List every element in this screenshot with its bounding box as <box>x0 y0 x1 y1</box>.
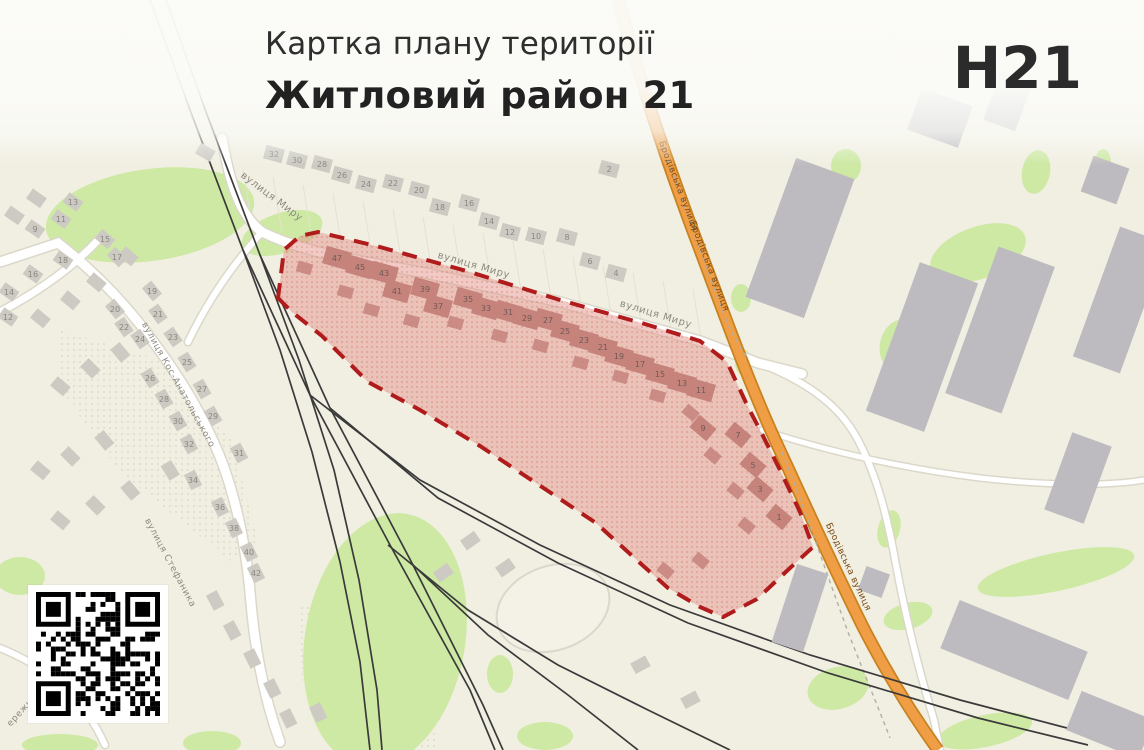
district-house-number: 33 <box>481 304 491 313</box>
house-number: 28 <box>159 395 169 404</box>
house-number: 40 <box>244 548 254 557</box>
district-house-number: 1 <box>776 513 781 522</box>
green-area <box>487 655 513 693</box>
house-number: 21 <box>153 310 163 319</box>
district-house-number: 17 <box>635 360 645 369</box>
house-number: 42 <box>251 569 261 578</box>
house-number: 20 <box>414 186 424 195</box>
district-house-number: 39 <box>420 285 430 294</box>
house-number: 12 <box>505 228 515 237</box>
house-number: 16 <box>464 199 474 208</box>
district-house-number: 11 <box>696 386 706 395</box>
district-house-number: 5 <box>750 461 755 470</box>
district-house-number: 45 <box>355 263 365 272</box>
house-number: 6 <box>587 257 592 266</box>
plan-card: 3230282624222018161412108642131191816141… <box>0 0 1144 750</box>
house-number: 25 <box>182 358 192 367</box>
district-house-number: 43 <box>379 269 389 278</box>
house-number: 14 <box>4 288 14 297</box>
district-house-number: 7 <box>735 431 740 440</box>
house-number: 18 <box>435 203 445 212</box>
district-house-number: 23 <box>579 336 589 345</box>
house-number: 30 <box>292 156 302 165</box>
house-number: 24 <box>361 180 371 189</box>
house-number: 16 <box>28 270 38 279</box>
house-number: 22 <box>119 323 129 332</box>
house-number: 18 <box>58 256 68 265</box>
house-number: 19 <box>147 287 157 296</box>
district-house-number: 31 <box>503 308 513 317</box>
house-number: 15 <box>100 235 110 244</box>
map-canvas: 3230282624222018161412108642131191816141… <box>0 0 1144 750</box>
house-number: 24 <box>135 335 145 344</box>
district-house-number: 3 <box>757 485 762 494</box>
house-number: 26 <box>337 171 347 180</box>
house-number: 26 <box>145 374 155 383</box>
house-number: 27 <box>197 385 207 394</box>
house-number: 32 <box>269 150 279 159</box>
house-number: 32 <box>184 440 194 449</box>
house-number: 30 <box>173 417 183 426</box>
district-house-number: 13 <box>677 379 687 388</box>
house-number: 4 <box>613 269 618 278</box>
district-house-number: 35 <box>463 295 473 304</box>
house-number: 20 <box>110 305 120 314</box>
district-house-number: 19 <box>614 352 624 361</box>
qr-code <box>28 585 168 723</box>
house-number: 11 <box>56 215 66 224</box>
house-number: 31 <box>234 449 244 458</box>
district-house-number: 9 <box>700 424 705 433</box>
house-number: 13 <box>68 198 78 207</box>
district-house-number: 37 <box>433 302 443 311</box>
house-number: 10 <box>531 232 541 241</box>
district-house-number: 29 <box>522 314 532 323</box>
house-number: 12 <box>3 313 13 322</box>
district-house-number: 47 <box>332 254 342 263</box>
district-house-number: 21 <box>598 343 608 352</box>
house-number: 29 <box>208 412 218 421</box>
district-house-number: 15 <box>655 370 665 379</box>
house-number: 36 <box>215 503 225 512</box>
house-number: 34 <box>188 476 198 485</box>
house-number: 23 <box>168 333 178 342</box>
green-area <box>517 722 573 750</box>
house-number: 8 <box>564 233 569 242</box>
green-area <box>731 284 751 312</box>
qr-code-pattern <box>36 592 160 716</box>
house-number: 17 <box>112 253 122 262</box>
house-number: 9 <box>32 225 37 234</box>
house-number: 2 <box>606 165 611 174</box>
district-house-number: 25 <box>560 327 570 336</box>
house-number: 14 <box>484 217 494 226</box>
house-number: 22 <box>388 179 398 188</box>
district-house-number: 27 <box>543 316 553 325</box>
house-number: 38 <box>229 524 239 533</box>
house-number: 28 <box>317 160 327 169</box>
district-house-number: 41 <box>392 287 402 296</box>
